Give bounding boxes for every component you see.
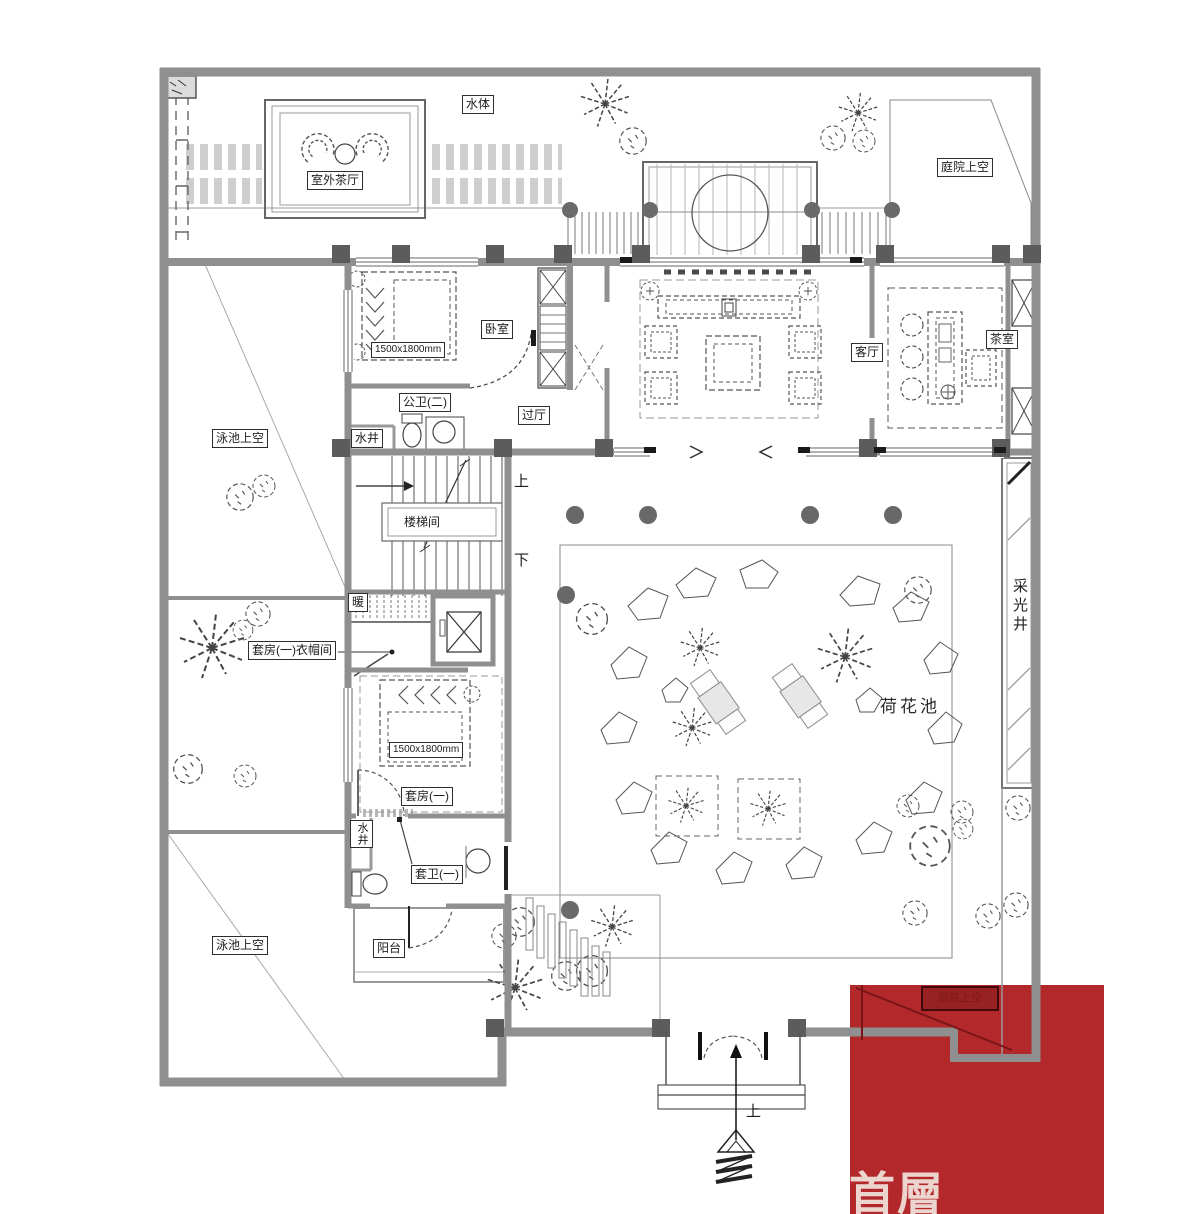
label-passage-hall: 过厅 (518, 406, 550, 425)
label-light-well: 采光井 (1009, 578, 1030, 635)
living-hall-furniture (640, 280, 821, 418)
label-lotus-pond: 荷花池 (880, 692, 940, 717)
label-bedroom: 卧室 (481, 320, 513, 339)
label-stair-room: 楼梯间 (404, 513, 440, 530)
label-suite-1: 套房(一) (401, 787, 453, 806)
label-living-hall: 客厅 (851, 343, 883, 362)
site-lines (164, 100, 1031, 1080)
label-stair-down: 下 (514, 549, 529, 570)
label-heating: 暖 (348, 593, 368, 612)
label-stair-up: 上 (514, 470, 529, 491)
label-bed-size-main: 1500x1800mm (371, 342, 445, 358)
label-entry-up: 上 (746, 1100, 761, 1121)
label-balcony: 阳台 (373, 939, 405, 958)
label-bed-size-suite: 1500x1800mm (389, 742, 463, 758)
label-water-body: 水体 (462, 95, 494, 114)
lotus-pond-rocks (601, 560, 962, 884)
light-well (1002, 458, 1036, 1058)
label-water-well-lower: 水井 (350, 820, 373, 848)
tea-room-furniture (888, 280, 1036, 434)
round-table (335, 144, 355, 164)
label-suite-bath-1: 套卫(一) (411, 865, 463, 884)
entrance (658, 1032, 805, 1182)
label-courtyard-void: 庭院上空 (937, 158, 993, 177)
label-pool-void-lower: 泳池上空 (212, 936, 268, 955)
label-suite-cloakroom: 套房(一)衣帽间 (248, 641, 336, 660)
moon-deck (568, 162, 886, 257)
label-water-well-upper: 水井 (351, 429, 383, 448)
lounge-chair (689, 669, 747, 736)
label-pool-void-upper: 泳池上空 (212, 429, 268, 448)
floor-plan-page: 水体 室外茶厅 庭院上空 卧室 过厅 公卫(二) 水井 客厅 茶室 泳池上空 楼… (0, 0, 1200, 1214)
label-public-bath-2: 公卫(二) (399, 393, 451, 412)
floor-tag: 首層 (849, 1158, 945, 1214)
bedroom-furniture (349, 268, 603, 390)
fan-chair (298, 130, 335, 163)
label-tea-room: 茶室 (986, 330, 1018, 349)
tea-pavilion (265, 100, 425, 218)
label-red-area: 庭院上空 (921, 986, 999, 1011)
courtyard (560, 545, 962, 958)
fan-chair (354, 130, 391, 163)
lounge-chair (771, 663, 829, 730)
label-outdoor-tea: 室外茶厅 (307, 171, 363, 190)
pier-planks (186, 157, 562, 191)
